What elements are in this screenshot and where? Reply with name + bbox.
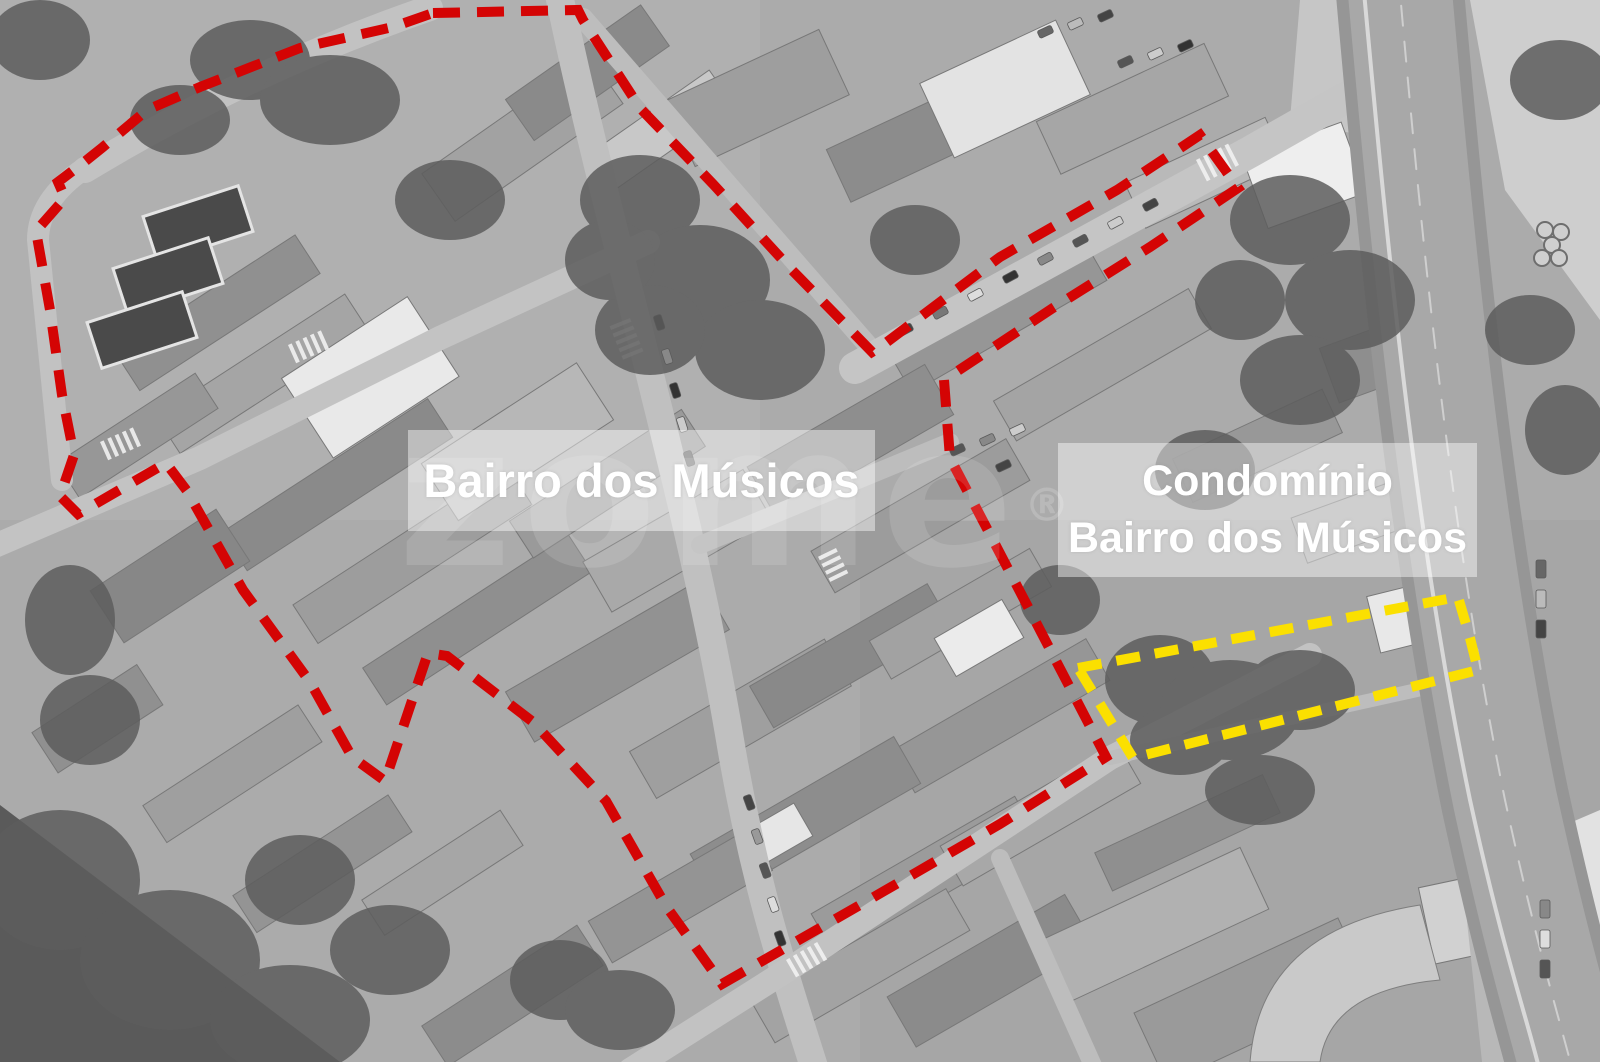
area-label-condominio-bairro-dos-musicos: Condomínio Bairro dos Músicos	[1058, 443, 1477, 577]
area-label-text: Bairro dos Músicos	[423, 453, 859, 508]
area-label-line1: Condomínio	[1142, 453, 1393, 510]
annotated-aerial-map: zome ® Bairro dos Músicos Condomínio Bai…	[0, 0, 1600, 1062]
area-label-line2: Bairro dos Músicos	[1068, 510, 1467, 567]
area-label-bairro-dos-musicos: Bairro dos Músicos	[408, 430, 875, 531]
